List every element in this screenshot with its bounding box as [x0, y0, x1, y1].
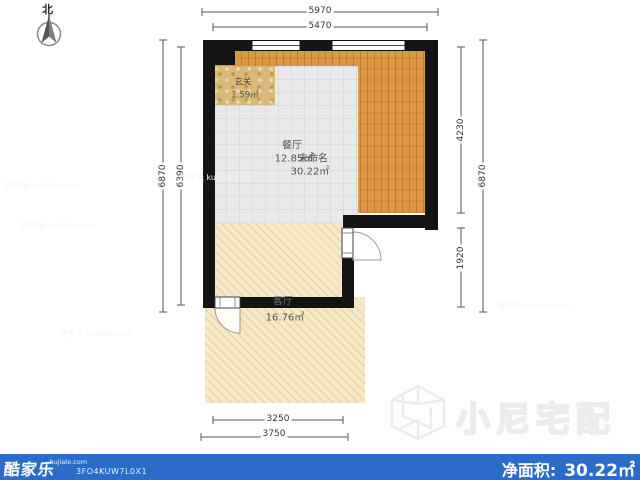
- kujiale-logo: 酷家乐: [3, 456, 57, 480]
- net-area-value: 30.22㎡: [564, 456, 635, 480]
- dim-right-upper: 4230: [456, 117, 466, 144]
- room-dining-name: 餐厅: [282, 141, 302, 152]
- kujiale-tile-watermark: 酷家乐 kujiale.com: [498, 300, 570, 311]
- wall-corner-pillar: [212, 40, 235, 65]
- kujiale-tile-watermark: 酷家乐 kujiale.com: [180, 172, 252, 183]
- partner-watermark: 小尼宅配: [456, 392, 616, 441]
- kujiale-tile-watermark: 酷家乐 kujiale.com: [60, 328, 132, 339]
- cube-logo-icon: [385, 382, 451, 442]
- plan-code: 3FO4KUW7L0X1: [76, 467, 147, 476]
- kujiale-tile-watermark: 酷家乐 kujiale.com: [6, 180, 78, 191]
- door-right-icon: [342, 228, 381, 260]
- room-entry-area: 1.59㎡: [231, 91, 258, 102]
- room-entry-name: 玄关: [234, 78, 251, 89]
- dim-right-lower: 1920: [456, 245, 466, 272]
- footer-bar: 酷家乐 kujiale.com 3FO4KUW7L0X1 净面积: 30.22㎡: [0, 454, 640, 480]
- room-living-area: 16.76㎡: [266, 313, 305, 324]
- wall-right-upper: [425, 40, 438, 230]
- dim-top-inner: 5470: [307, 21, 334, 31]
- wall-interior: [343, 215, 438, 228]
- room-unnamed-area: 30.22㎡: [291, 167, 330, 178]
- wall-top: [203, 40, 438, 51]
- kujiale-tile-watermark: 酷家乐 kujiale.com: [22, 220, 94, 231]
- dim-bottom-outer: 3750: [261, 429, 288, 439]
- north-compass-icon: [33, 12, 67, 50]
- wall-bottom: [238, 297, 354, 308]
- floorplan-canvas: 酷家乐 kujiale.com 酷家乐 kujiale.com 酷家乐 kuji…: [0, 0, 640, 480]
- net-area: 净面积: 30.22㎡: [502, 456, 635, 480]
- room-living-name: 客厅: [273, 297, 293, 308]
- kujiale-domain: kujiale.com: [50, 458, 87, 466]
- dim-left-outer: 6870: [158, 163, 168, 190]
- net-area-label: 净面积:: [502, 457, 556, 480]
- dim-right-outer: 6870: [478, 163, 488, 190]
- room-unnamed-name: 未命名: [298, 154, 328, 165]
- dim-bottom-inner: 3250: [265, 414, 292, 424]
- dim-top-outer: 5970: [307, 6, 334, 16]
